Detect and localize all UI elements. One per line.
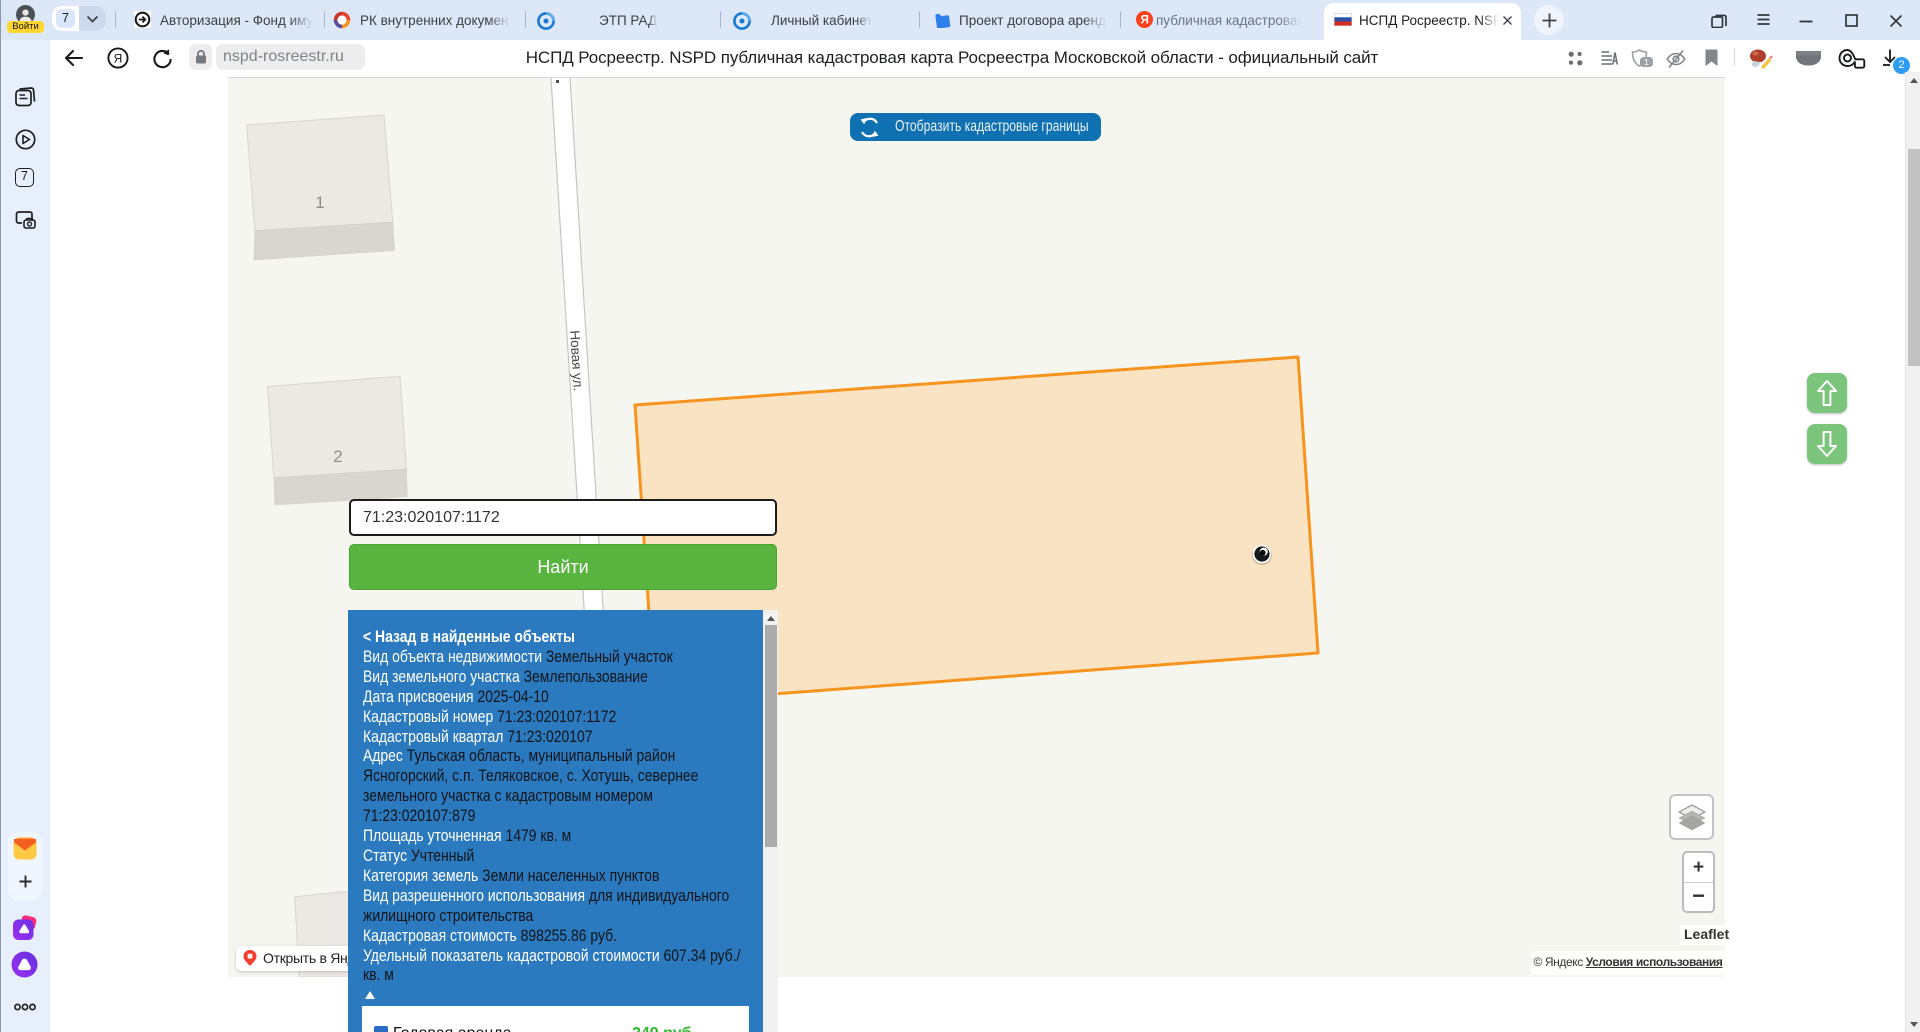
svg-text:1: 1: [1644, 57, 1649, 67]
svg-text:Я: Я: [1141, 15, 1149, 27]
svg-text:1: 1: [315, 193, 324, 212]
svg-text:2: 2: [333, 447, 342, 466]
svg-text:Я: Я: [114, 51, 123, 65]
